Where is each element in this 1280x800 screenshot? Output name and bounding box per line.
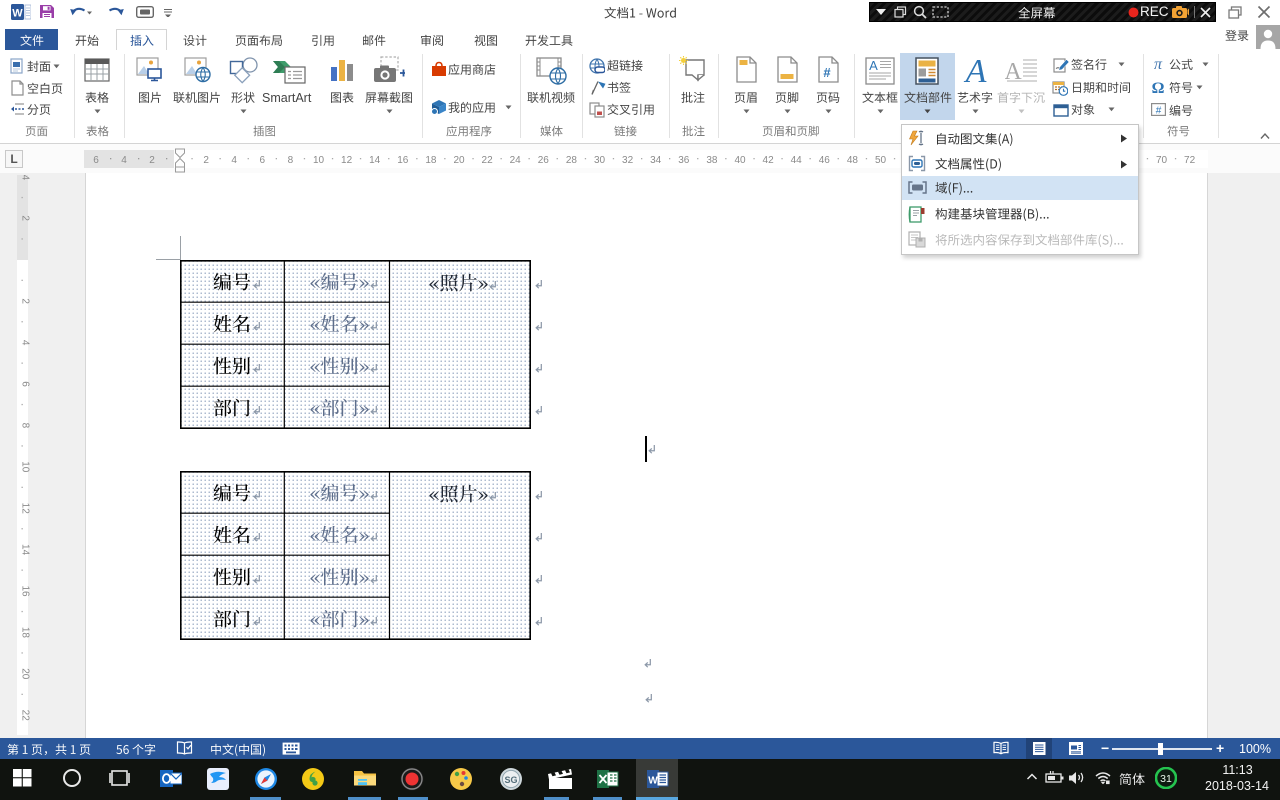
svg-text:26: 26 [538,155,550,166]
svg-text:10: 10 [20,461,31,473]
svg-text:#: # [1156,106,1162,117]
svg-text:48: 48 [847,155,859,166]
svg-text:24: 24 [510,155,522,166]
svg-text:28: 28 [566,155,578,166]
svg-text:2: 2 [203,155,209,166]
svg-text:40: 40 [734,155,746,166]
svg-text:6: 6 [93,155,99,166]
svg-text:44: 44 [791,155,803,166]
svg-text:32: 32 [622,155,634,166]
svg-text:31: 31 [1160,773,1172,785]
svg-text:2: 2 [149,155,155,166]
svg-text:4: 4 [20,175,31,181]
svg-text:42: 42 [763,155,775,166]
svg-text:20: 20 [453,155,465,166]
svg-text:14: 14 [20,544,31,556]
svg-text:50: 50 [875,155,887,166]
svg-text:38: 38 [706,155,718,166]
svg-text:70: 70 [1156,155,1168,166]
svg-text:72: 72 [1184,155,1196,166]
svg-text:12: 12 [20,503,31,515]
svg-text:12: 12 [341,155,353,166]
svg-text:π: π [1154,57,1163,70]
svg-text:14: 14 [369,155,381,166]
svg-text:Ω: Ω [1152,80,1165,94]
svg-text:2: 2 [20,215,31,221]
svg-text:22: 22 [482,155,494,166]
svg-text:SG: SG [504,775,517,785]
svg-text:20: 20 [20,668,31,680]
svg-text:10: 10 [313,155,325,166]
svg-text:6: 6 [260,155,266,166]
svg-text:A: A [964,55,987,87]
svg-text:4: 4 [231,155,237,166]
svg-text:16: 16 [397,155,409,166]
svg-text:W: W [648,776,658,787]
svg-text:36: 36 [678,155,690,166]
svg-text:16: 16 [20,585,31,597]
svg-text:18: 18 [425,155,437,166]
svg-text:22: 22 [20,710,31,722]
svg-text:#: # [823,65,831,80]
svg-text:8: 8 [288,155,294,166]
svg-text:4: 4 [20,340,31,346]
svg-text:30: 30 [594,155,606,166]
svg-text:W: W [12,8,23,20]
svg-text:46: 46 [819,155,831,166]
svg-text:6: 6 [20,381,31,387]
svg-text:34: 34 [650,155,662,166]
svg-text:2: 2 [20,298,31,304]
svg-text:18: 18 [20,627,31,639]
svg-text:4: 4 [121,155,127,166]
svg-text:8: 8 [20,423,31,429]
svg-text:A: A [869,58,878,73]
